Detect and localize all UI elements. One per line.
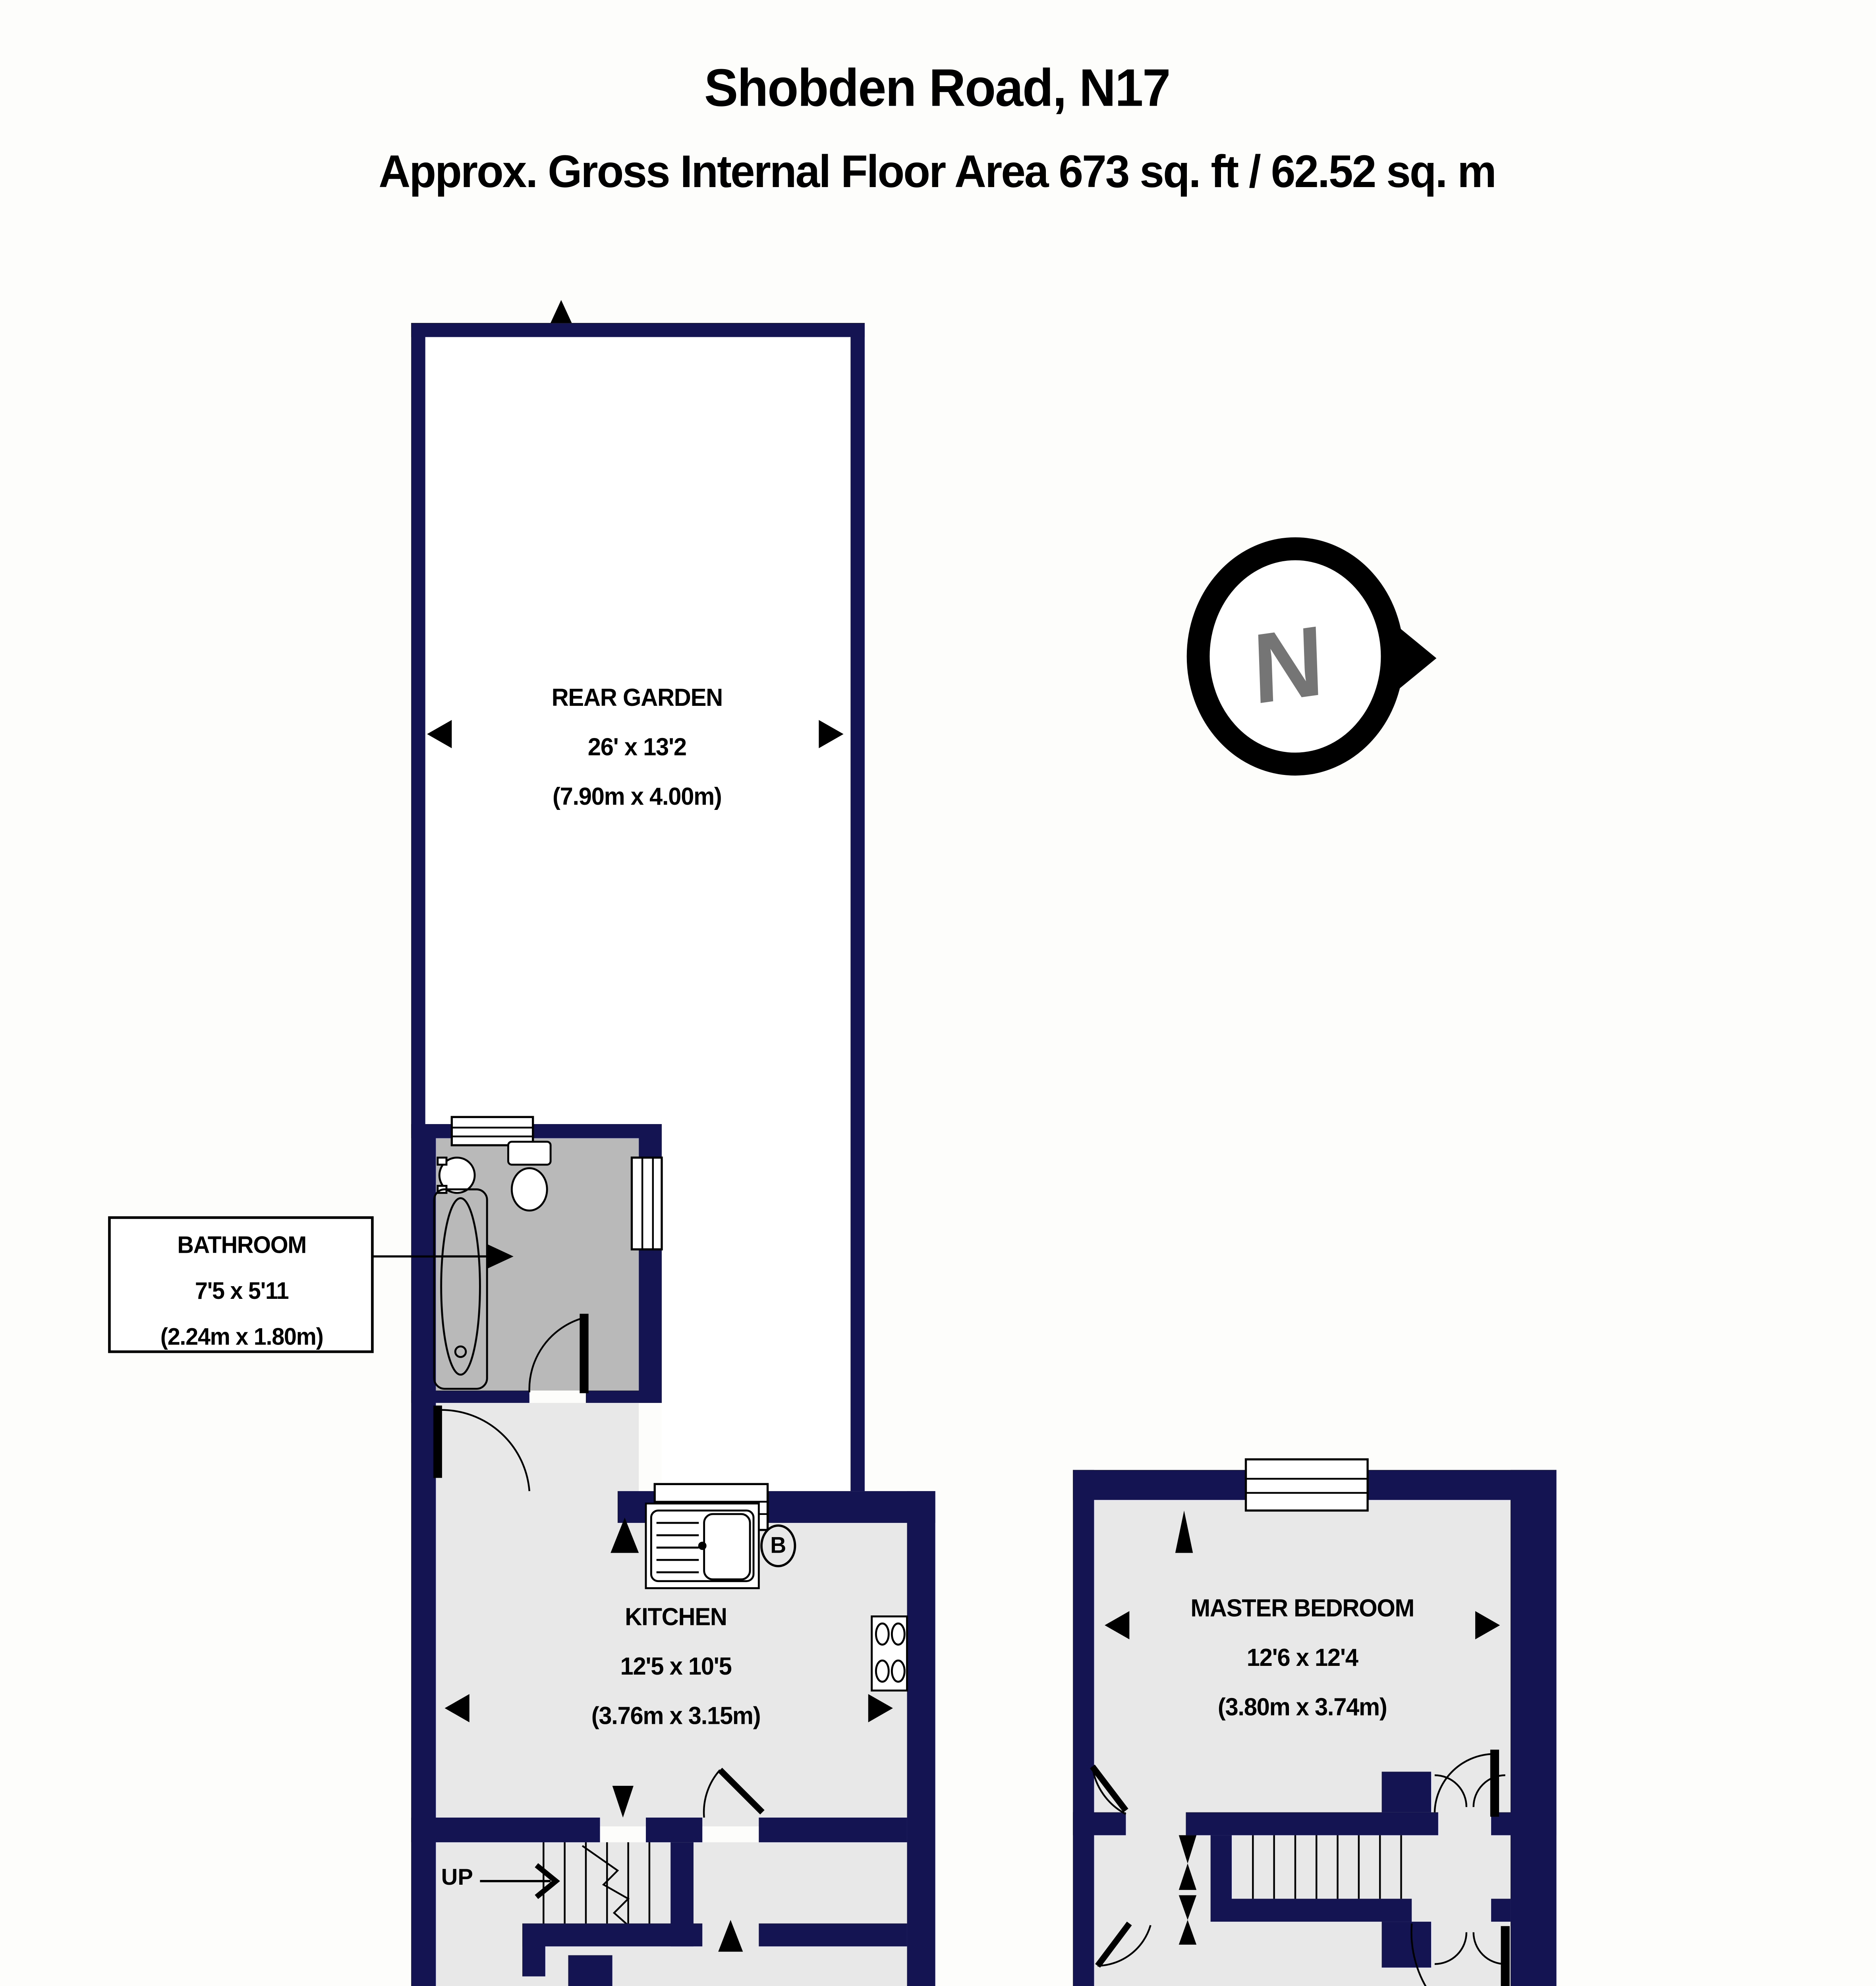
compass-north-letter: N bbox=[1251, 602, 1325, 727]
room-label-kitchen: KITCHEN 12'5 x 10'5 (3.76m x 3.15m) bbox=[591, 1592, 761, 1740]
up-label: UP bbox=[441, 1863, 473, 1890]
page-subtitle: Approx. Gross Internal Floor Area 673 sq… bbox=[379, 145, 1495, 199]
floorplan-drawing bbox=[0, 0, 1876, 1986]
hob-icon bbox=[872, 1617, 907, 1691]
floorplan-page: Shobden Road, N17 Approx. Gross Internal… bbox=[0, 0, 1876, 1986]
sink-icon bbox=[438, 1157, 475, 1193]
toilet-icon bbox=[508, 1142, 551, 1210]
room-label-bathroom: BATHROOM 7'5 x 5'11 (2.24m x 1.80m) bbox=[160, 1223, 323, 1361]
kitchen-sink-icon bbox=[646, 1503, 759, 1588]
room-floors bbox=[436, 1138, 1511, 1986]
page-title: Shobden Road, N17 bbox=[704, 60, 1170, 120]
boiler-label: B bbox=[770, 1532, 786, 1558]
room-label-rear-garden: REAR GARDEN 26' x 13'2 (7.90m x 4.00m) bbox=[552, 672, 723, 821]
garden-top-arrow-icon bbox=[551, 300, 572, 323]
room-label-master-bedroom: MASTER BEDROOM 12'6 x 12'4 (3.80m x 3.74… bbox=[1190, 1583, 1414, 1731]
